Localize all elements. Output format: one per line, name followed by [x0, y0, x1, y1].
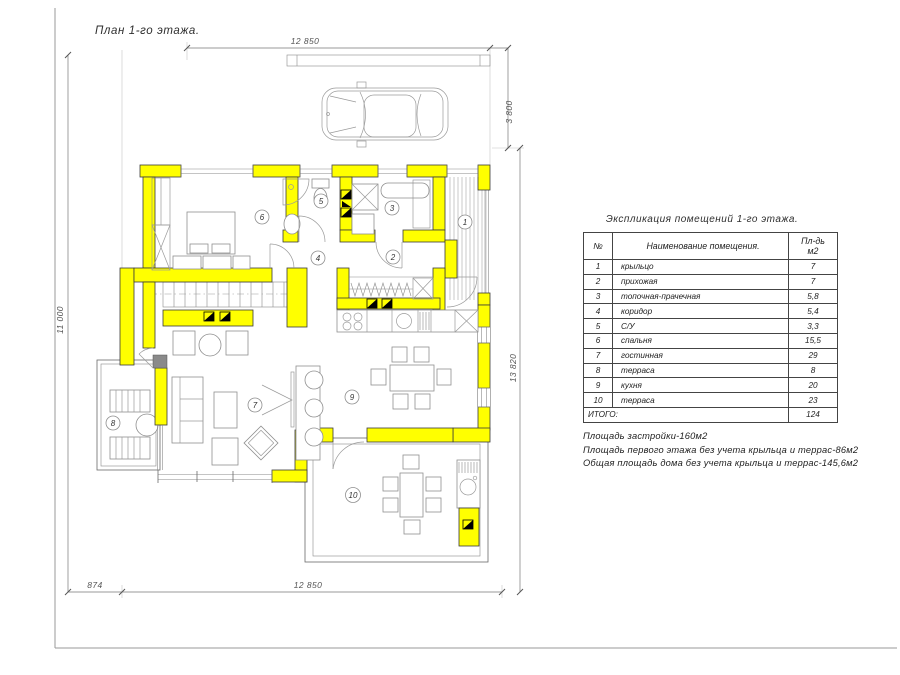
round-table [199, 334, 221, 356]
area-notes: Площадь застройки-160м2 Площадь первого … [583, 430, 883, 471]
sofa [172, 377, 203, 443]
cell-name: прихожая [613, 274, 789, 289]
dining-table-terrace [383, 455, 441, 534]
cell-num: 10 [584, 393, 613, 408]
svg-text:5: 5 [319, 197, 324, 206]
cell-area: 5,4 [789, 304, 838, 319]
total-label: ИТОГО: [584, 407, 789, 422]
dim-parking: 3 800 [504, 100, 514, 123]
window [447, 165, 478, 177]
armchair [173, 331, 195, 355]
room-label-9: 9 [345, 390, 359, 404]
svg-text:10: 10 [349, 491, 358, 500]
cell-name: спальня [613, 333, 789, 348]
dim-bottom-small: 874 [87, 580, 102, 590]
cell-name: топочная-прачечная [613, 289, 789, 304]
plan-title: План 1-го этажа. [95, 25, 200, 37]
dim-bottom: 12 850 [294, 580, 322, 590]
tv-view-lines [262, 385, 292, 415]
window [378, 165, 407, 177]
table-row: 3 топочная-прачечная 5,8 [584, 289, 838, 304]
cell-num: 8 [584, 363, 613, 378]
coffee-table [214, 392, 237, 428]
explication-panel: Экспликация помещений 1-го этажа. № Наим… [583, 214, 821, 423]
kitchen [333, 310, 478, 469]
cell-num: 4 [584, 304, 613, 319]
cell-area: 20 [789, 378, 838, 393]
washing-machine [352, 184, 378, 210]
cell-area: 7 [789, 274, 838, 289]
bed [173, 212, 250, 269]
table-row: 4 коридор 5,4 [584, 304, 838, 319]
cell-area: 15,5 [789, 333, 838, 348]
cell-area: 5,8 [789, 289, 838, 304]
room-label-4: 4 [311, 251, 325, 265]
staircase [150, 282, 300, 307]
table-total-row: ИТОГО: 124 [584, 407, 838, 422]
note-line: Площадь застройки-160м2 [583, 430, 883, 444]
room-label-3: 3 [385, 201, 399, 215]
bathroom-door [299, 216, 325, 242]
cell-name: крыльцо [613, 260, 789, 275]
room-label-7: 7 [248, 398, 262, 412]
closet-box [413, 278, 433, 299]
cell-area: 7 [789, 260, 838, 275]
svg-text:7: 7 [253, 401, 258, 410]
area-unit-line2: м2 [808, 246, 819, 256]
terrace-10 [305, 438, 488, 562]
table-row: 9 кухня 20 [584, 378, 838, 393]
table-row: 1 крыльцо 7 [584, 260, 838, 275]
bedroom [152, 178, 294, 270]
room-label-5: 5 [314, 194, 328, 208]
cell-num: 5 [584, 319, 613, 334]
col-header-name: Наименование помещения. [613, 233, 789, 260]
hall-closet [349, 277, 433, 299]
svg-text:4: 4 [316, 254, 321, 263]
note-line: Общая площадь дома без учета крыльца и т… [583, 457, 883, 471]
room-label-2: 2 [386, 250, 400, 264]
svg-text:9: 9 [350, 393, 355, 402]
cell-num: 3 [584, 289, 613, 304]
cell-num: 6 [584, 333, 613, 348]
dim-right: 13 820 [508, 354, 518, 382]
lounge-chair [110, 390, 150, 412]
col-header-num: № [584, 233, 613, 260]
total-area: 124 [789, 407, 838, 422]
explication-title: Экспликация помещений 1-го этажа. [583, 214, 821, 225]
cell-name: коридор [613, 304, 789, 319]
table-row: 7 гостинная 29 [584, 348, 838, 363]
svg-text:3: 3 [390, 204, 395, 213]
pouf [244, 426, 278, 460]
table-row: 6 спальня 15,5 [584, 333, 838, 348]
bar-counter [296, 366, 323, 460]
svg-text:6: 6 [260, 213, 265, 222]
window [300, 165, 332, 177]
chair [212, 438, 238, 465]
dining-table [371, 347, 451, 409]
room-label-6: 6 [255, 210, 269, 224]
terrace-door [333, 442, 364, 469]
cell-name: терраса [613, 363, 789, 378]
parking-area [287, 55, 490, 147]
svg-text:8: 8 [111, 419, 116, 428]
table-row: 5 С/У 3,3 [584, 319, 838, 334]
svg-text:2: 2 [390, 253, 396, 262]
window [478, 327, 490, 343]
room-label-1: 1 [458, 215, 472, 229]
drawing-sheet: План 1-го этажа. 12 850 3 800 11 000 13 [0, 0, 900, 675]
window [478, 388, 490, 407]
cell-area: 29 [789, 348, 838, 363]
sink [284, 214, 300, 234]
dim-top: 12 850 [291, 36, 319, 46]
room-label-8: 8 [106, 416, 120, 430]
window [181, 165, 253, 177]
note-line: Площадь первого этажа без учета крыльца … [583, 444, 883, 458]
terrace8-door [139, 348, 167, 368]
cell-name: кухня [613, 378, 789, 393]
laundry-tub [381, 183, 429, 198]
cell-area: 8 [789, 363, 838, 378]
svg-text:1: 1 [463, 218, 467, 227]
boiler [352, 214, 374, 234]
cell-num: 1 [584, 260, 613, 275]
dim-left: 11 000 [55, 306, 65, 334]
car [322, 82, 448, 147]
armchair [226, 331, 248, 355]
cell-name: С/У [613, 319, 789, 334]
bbq-grill [457, 460, 480, 546]
bedroom-door [270, 244, 294, 268]
lounge-chair [110, 437, 150, 459]
cell-num: 7 [584, 348, 613, 363]
table-header-row: № Наименование помещения. Пл-дь м2 [584, 233, 838, 260]
cell-area: 23 [789, 393, 838, 408]
room-label-10: 10 [346, 488, 361, 503]
terrace-8 [97, 360, 160, 470]
cell-name: терраса [613, 393, 789, 408]
table-row: 8 терраса 8 [584, 363, 838, 378]
table-row: 10 терраса 23 [584, 393, 838, 408]
col-header-area: Пл-дь м2 [789, 233, 838, 260]
table-row: 2 прихожая 7 [584, 274, 838, 289]
area-unit-line1: Пл-дь [801, 236, 825, 246]
cell-area: 3,3 [789, 319, 838, 334]
cell-name: гостинная [613, 348, 789, 363]
cell-num: 9 [584, 378, 613, 393]
window [158, 470, 272, 483]
explication-table: № Наименование помещения. Пл-дь м2 1 кры… [583, 232, 838, 423]
cell-num: 2 [584, 274, 613, 289]
